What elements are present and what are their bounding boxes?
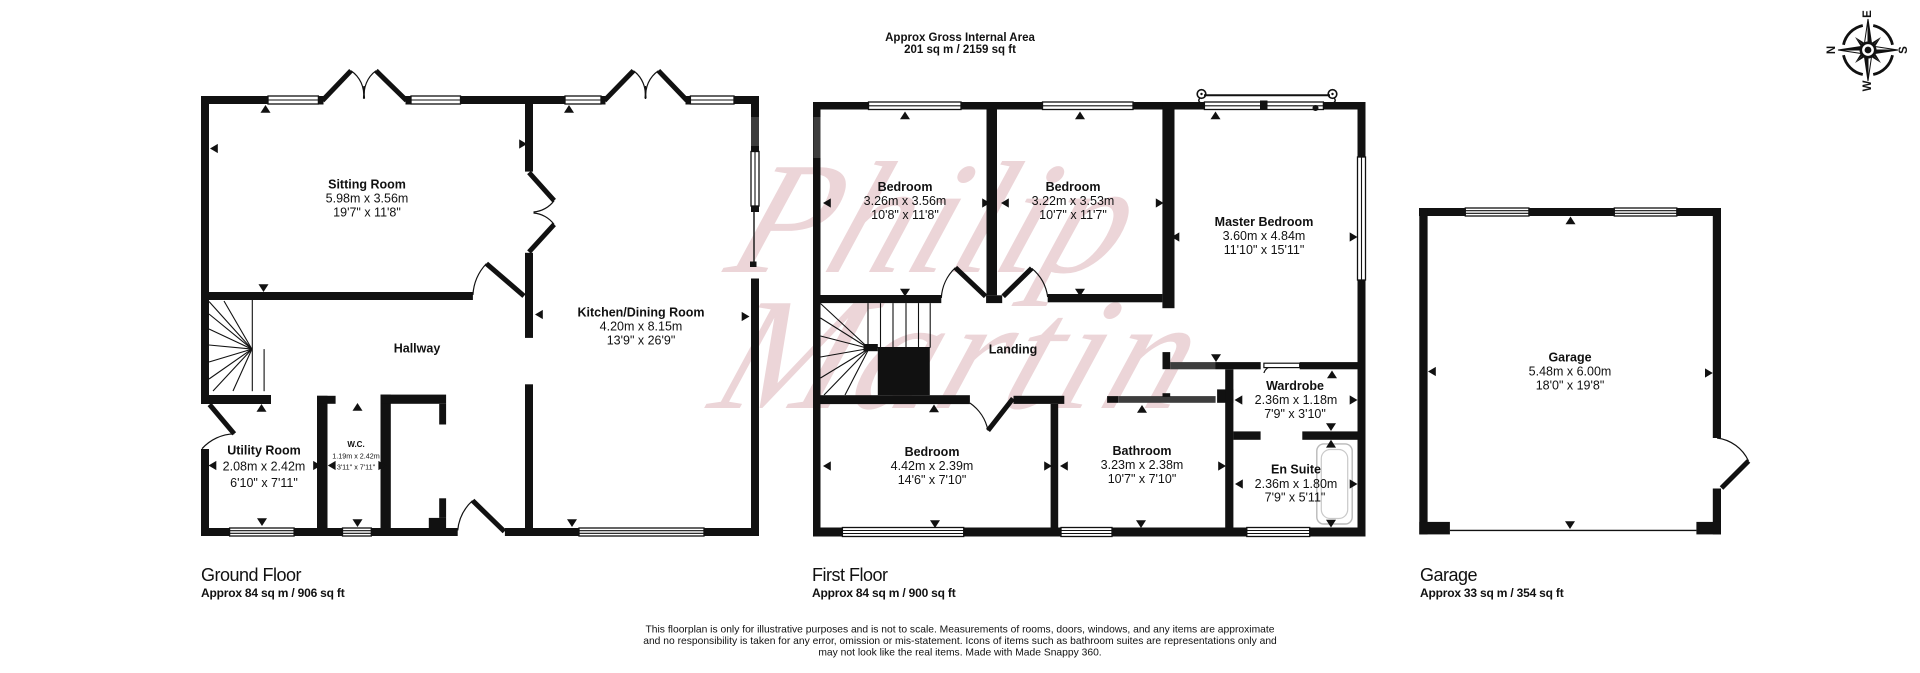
svg-text:4.42m x 2.39m: 4.42m x 2.39m bbox=[891, 459, 974, 473]
svg-text:10'7" x 11'7": 10'7" x 11'7" bbox=[1039, 208, 1107, 222]
svg-text:Garage: Garage bbox=[1548, 351, 1591, 365]
svg-text:Kitchen/Dining Room: Kitchen/Dining Room bbox=[577, 306, 704, 320]
svg-text:En Suite: En Suite bbox=[1271, 463, 1321, 477]
svg-text:and no responsibility is taken: and no responsibility is taken for any e… bbox=[643, 636, 1277, 647]
svg-text:2.36m x 1.80m: 2.36m x 1.80m bbox=[1255, 477, 1338, 491]
svg-text:10'7" x 7'10": 10'7" x 7'10" bbox=[1108, 472, 1177, 486]
svg-text:7'9" x 3'10": 7'9" x 3'10" bbox=[1264, 407, 1326, 421]
svg-text:Bedroom: Bedroom bbox=[878, 180, 933, 194]
svg-text:Bedroom: Bedroom bbox=[905, 445, 960, 459]
svg-text:N: N bbox=[1826, 46, 1838, 54]
svg-text:7'9" x 5'11": 7'9" x 5'11" bbox=[1265, 491, 1326, 505]
svg-text:10'8" x 11'8": 10'8" x 11'8" bbox=[871, 208, 939, 222]
svg-text:5.48m x 6.00m: 5.48m x 6.00m bbox=[1529, 365, 1612, 379]
svg-text:Hallway: Hallway bbox=[394, 342, 441, 356]
svg-text:3.23m x 2.38m: 3.23m x 2.38m bbox=[1101, 458, 1184, 472]
svg-text:may not look like the real ite: may not look like the real items. Made w… bbox=[818, 648, 1101, 659]
svg-text:Bathroom: Bathroom bbox=[1112, 444, 1171, 458]
svg-text:Sitting Room: Sitting Room bbox=[328, 178, 406, 192]
svg-text:3.60m x 4.84m: 3.60m x 4.84m bbox=[1223, 229, 1306, 243]
svg-text:13'9" x 26'9": 13'9" x 26'9" bbox=[607, 334, 676, 348]
svg-text:Garage: Garage bbox=[1420, 565, 1478, 585]
svg-text:W.C.: W.C. bbox=[347, 440, 364, 449]
svg-text:Landing: Landing bbox=[989, 343, 1038, 357]
svg-text:6'10" x 7'11": 6'10" x 7'11" bbox=[230, 476, 298, 490]
svg-text:Bedroom: Bedroom bbox=[1046, 180, 1101, 194]
svg-text:Approx 84 sq m / 906 sq ft: Approx 84 sq m / 906 sq ft bbox=[201, 586, 345, 600]
svg-text:Approx Gross Internal Area: Approx Gross Internal Area bbox=[885, 32, 1035, 44]
svg-text:3'11" x 7'11": 3'11" x 7'11" bbox=[337, 463, 376, 472]
svg-text:5.98m x 3.56m: 5.98m x 3.56m bbox=[326, 192, 409, 206]
svg-text:11'10" x 15'11": 11'10" x 15'11" bbox=[1224, 243, 1305, 257]
svg-text:E: E bbox=[1862, 10, 1874, 18]
svg-text:W: W bbox=[1862, 80, 1874, 91]
svg-text:1.19m x 2.42m: 1.19m x 2.42m bbox=[332, 452, 380, 461]
svg-text:Wardrobe: Wardrobe bbox=[1266, 379, 1324, 393]
svg-text:3.22m x 3.53m: 3.22m x 3.53m bbox=[1032, 194, 1115, 208]
svg-text:4.20m x 8.15m: 4.20m x 8.15m bbox=[600, 320, 683, 334]
svg-text:Utility Room: Utility Room bbox=[227, 444, 301, 458]
svg-text:Master Bedroom: Master Bedroom bbox=[1215, 215, 1314, 229]
svg-text:Ground Floor: Ground Floor bbox=[201, 565, 302, 585]
svg-text:Approx 84 sq m / 900 sq ft: Approx 84 sq m / 900 sq ft bbox=[812, 586, 956, 600]
svg-text:2.36m x 1.18m: 2.36m x 1.18m bbox=[1255, 393, 1338, 407]
svg-text:201 sq m / 2159 sq ft: 201 sq m / 2159 sq ft bbox=[904, 44, 1016, 56]
svg-text:S: S bbox=[1898, 46, 1910, 54]
svg-text:14'6" x 7'10": 14'6" x 7'10" bbox=[898, 473, 967, 487]
svg-text:19'7" x 11'8": 19'7" x 11'8" bbox=[333, 206, 401, 220]
svg-text:This floorplan is only for ill: This floorplan is only for illustrative … bbox=[646, 625, 1275, 636]
svg-text:Approx 33 sq m / 354 sq ft: Approx 33 sq m / 354 sq ft bbox=[1420, 586, 1564, 600]
svg-text:Martin: Martin bbox=[691, 266, 1232, 443]
svg-text:18'0" x 19'8": 18'0" x 19'8" bbox=[1536, 379, 1605, 393]
svg-text:First Floor: First Floor bbox=[812, 565, 888, 585]
svg-text:3.26m x 3.56m: 3.26m x 3.56m bbox=[864, 194, 947, 208]
svg-text:2.08m x 2.42m: 2.08m x 2.42m bbox=[223, 460, 306, 474]
